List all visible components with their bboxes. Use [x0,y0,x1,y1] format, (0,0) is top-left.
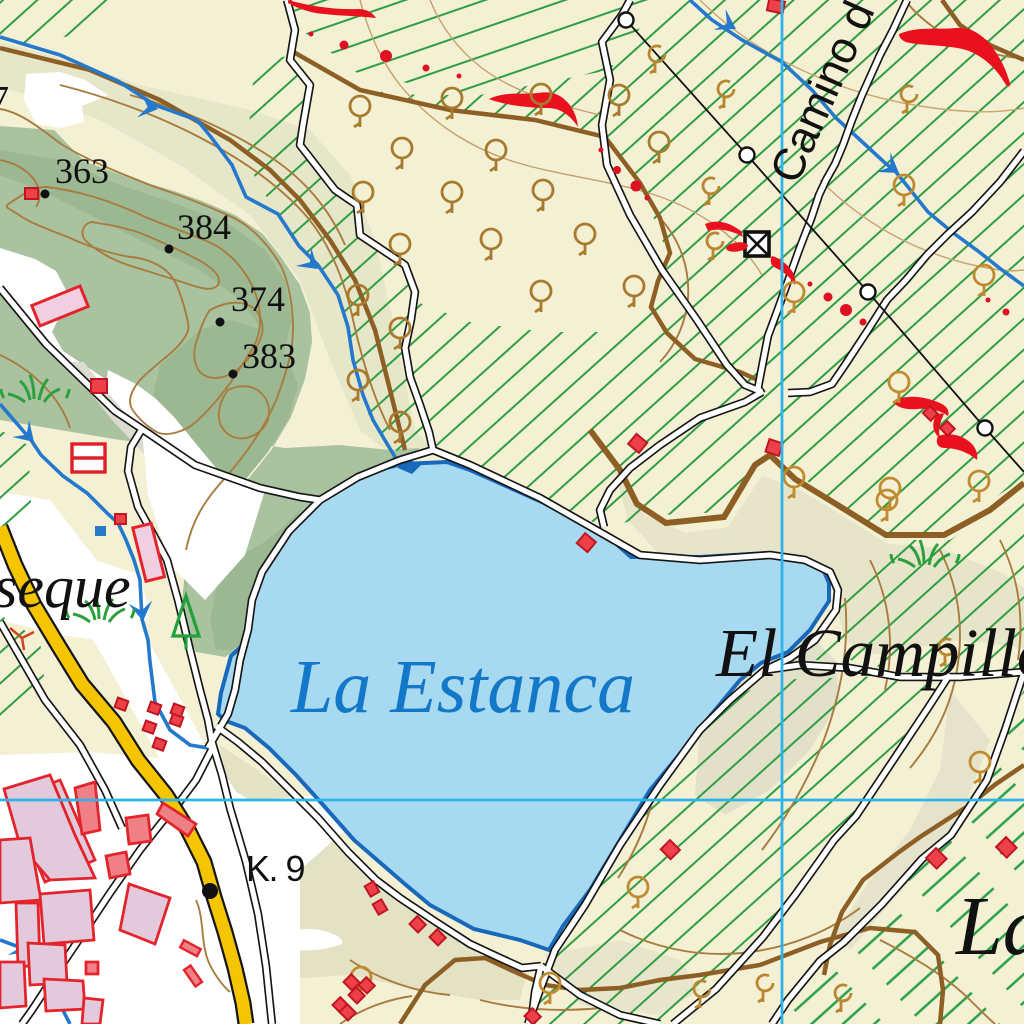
svg-text:La: La [955,880,1024,973]
svg-text:363: 363 [55,151,109,191]
svg-text:seque: seque [0,554,131,620]
svg-text:7: 7 [0,79,9,121]
svg-text:384: 384 [177,207,231,247]
svg-text:La Estanca: La Estanca [290,645,635,729]
svg-text:383: 383 [242,336,296,376]
svg-text:374: 374 [231,279,285,319]
svg-text:El Campillo: El Campillo [715,615,1024,691]
svg-text:K. 9: K. 9 [246,848,305,889]
